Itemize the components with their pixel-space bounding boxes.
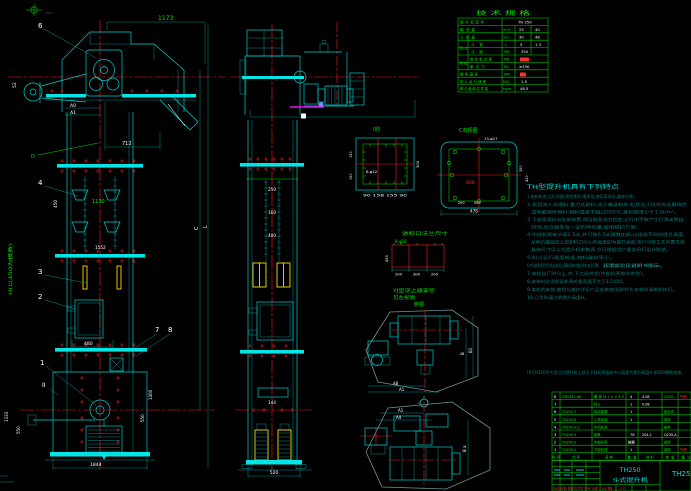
part-code: TH250.6 bbox=[561, 418, 576, 422]
view-c-350: 350 bbox=[519, 166, 523, 172]
part-name: 上部区段 bbox=[594, 417, 608, 422]
spec-group: 料斗 bbox=[460, 46, 469, 51]
note-line: 7.本机出厂时分上,中,下三段供货(中部机壳按节供货)。 bbox=[527, 270, 647, 277]
parts-header: 材 料 bbox=[646, 455, 654, 460]
parts-header: 数量 bbox=[628, 455, 638, 460]
part-material: Q235-A bbox=[664, 433, 677, 437]
balloon-2: 2 bbox=[38, 293, 42, 301]
title-drawing-no: TH250 bbox=[671, 470, 691, 478]
yj-note-1: YJ型逆止器安装 bbox=[392, 287, 436, 294]
spec-value: 40 bbox=[535, 27, 540, 32]
parts-header: 备注 bbox=[682, 455, 691, 460]
spec-value-red: ▇▇▇ bbox=[519, 57, 529, 62]
part-material: 部件 bbox=[664, 424, 671, 429]
dim-520: 520 bbox=[270, 470, 279, 476]
part-note: 外购 bbox=[680, 394, 687, 399]
dim-1173: 1173 bbox=[158, 15, 173, 22]
plan-view-bottom: A1 A4 B a bbox=[360, 396, 490, 489]
feed-h: 450 bbox=[385, 254, 389, 262]
dim-1844: 1844 bbox=[90, 462, 102, 468]
dim-52: 52 bbox=[12, 82, 18, 88]
flange-detail-i: I向 8-φ12 90 158 155 90 300 150 150 bbox=[349, 125, 420, 198]
plan1-dim-b: B bbox=[460, 352, 465, 355]
view-c-420: 420 bbox=[525, 176, 529, 182]
spec-label: 链条直径 bbox=[460, 71, 478, 76]
spec-value: 48 bbox=[535, 34, 540, 39]
spec-label: 牵引链单位质量 bbox=[460, 86, 489, 91]
balloon-3: 3 bbox=[38, 268, 42, 276]
part-no: 5 bbox=[554, 418, 556, 422]
notes-block: TH型提升机具有下列特点 1.结构先进,运行平稳,密封性好,噪声低,使用寿命长,… bbox=[526, 183, 687, 376]
note-line: 2.采用流入式喂料,重力式卸料,适于输送粉状,粒状及小块状的无磨琢性 bbox=[527, 201, 687, 208]
balloon-8: 8 bbox=[168, 326, 172, 334]
part-note: 外购 bbox=[680, 447, 687, 452]
cad-drawing-canvas[interactable]: 1173 712 A0 A1 52 1130 450 1552 H(以450为模… bbox=[0, 0, 691, 491]
part-code: GB5782-86 bbox=[562, 395, 581, 399]
spec-table-title: 技 术 规 格 bbox=[476, 9, 531, 17]
flange-i-bottom-dims: 90 158 155 90 bbox=[363, 194, 407, 198]
spec-value: 1.5 bbox=[521, 79, 528, 84]
dim-pitch-250: 250 bbox=[268, 187, 276, 192]
part-material: 部件 bbox=[664, 440, 671, 445]
spec-value: 350 bbox=[521, 49, 529, 54]
flange-i-label: I向 bbox=[373, 125, 380, 133]
dim-550-right: 550 bbox=[140, 414, 145, 422]
spec-unit: kg/m bbox=[503, 87, 511, 91]
projection-symbol bbox=[26, 4, 52, 16]
dim-a0: A0 bbox=[70, 103, 76, 109]
part-name: 中间机壳 bbox=[594, 424, 608, 429]
part-no: 3 bbox=[554, 433, 556, 437]
part-no: 7 bbox=[554, 403, 556, 407]
spec-label: 料斗运行速度 bbox=[460, 79, 487, 84]
part-qty: 1 bbox=[630, 418, 632, 422]
part-material: 部件 bbox=[664, 447, 671, 452]
title-scale: 比例 1:10 bbox=[602, 487, 626, 491]
balloon-7: 7 bbox=[155, 326, 159, 334]
spec-value: 48.5 bbox=[520, 86, 529, 91]
balloon-1: 1 bbox=[40, 359, 44, 367]
part-name: 中部机壳 bbox=[594, 440, 608, 445]
note-line: 同时,允许链条有一定的伸长量,使用维护方便。 bbox=[531, 224, 641, 231]
flange-i-left-dim2: 150 bbox=[349, 174, 353, 180]
detail-d-label: D bbox=[31, 154, 35, 160]
note-line: 6.传动装置采用YJ型逆止器,防止满载停车时链条逆转,安全可靠, bbox=[527, 262, 599, 269]
part-code: TH250.1 bbox=[561, 448, 576, 452]
feed-title: 进料口法兰尺寸 bbox=[402, 230, 449, 237]
side-elevation-view: 250 160 400 144 520 bbox=[230, 22, 420, 478]
dim-letter-l: L bbox=[203, 225, 209, 228]
plan1-dim-a8: A8 bbox=[393, 381, 399, 386]
plan2-dim-b: B a bbox=[462, 445, 467, 452]
part-code: TH250.7 bbox=[561, 410, 576, 414]
plan1-dim-a1: A1 bbox=[399, 387, 405, 392]
plan-view-label: 俯视 bbox=[414, 301, 424, 308]
note-line: 9.本机的安装,使用与维护详见产品安装使用说明书,安装时请参照执行。 bbox=[527, 286, 677, 293]
dim-h-module: H(以450为模数) bbox=[7, 243, 14, 295]
part-no: 4 bbox=[554, 425, 557, 429]
notes-title: TH型提升机具有下列特点 bbox=[526, 183, 619, 191]
spec-value-red: ▇▇ bbox=[519, 71, 526, 76]
parts-header: 代 号 bbox=[572, 455, 580, 460]
part-no: 8 bbox=[554, 395, 557, 399]
parts-table: 8 GB5782-86 螺栓M20×85 4 Q235 4.08 外购 7 料斗… bbox=[552, 392, 691, 460]
title-product: 斗式提升机 bbox=[612, 476, 649, 484]
note-line: 从地坑基础至上部卸料口中心的高度即为提升高度,用户可按工艺布置选用, bbox=[531, 239, 686, 246]
balloon-6: 6 bbox=[38, 22, 43, 30]
note-line: 1.结构先进,运行平稳,密封性好,噪声低,使用寿命长,维修方便。 bbox=[527, 193, 637, 200]
flange-i-holes: 8-φ12 bbox=[366, 169, 378, 174]
view-c-250: 250 bbox=[458, 201, 464, 205]
spec-value: 30 bbox=[519, 34, 524, 39]
yj-note-2: 见左视图 bbox=[393, 294, 416, 301]
balloon-4: 4 bbox=[38, 179, 43, 187]
plan1-dim-b1: B1 bbox=[468, 347, 473, 353]
plan2-dim-a1: A1 bbox=[398, 408, 404, 413]
feed-w3: 200 bbox=[431, 273, 439, 277]
part-name: 下部区段 bbox=[594, 447, 608, 452]
spec-label: 斗 距 bbox=[471, 49, 483, 54]
spec-unit: mm bbox=[503, 35, 509, 39]
dim-pitch-400: 400 bbox=[268, 233, 276, 238]
note-line: 具体尺寸见斗式提升机参数表,亦可根据用户要求另行设计制造。 bbox=[531, 246, 671, 253]
dim-550-left: 550 bbox=[16, 426, 21, 434]
note-line: 4.中部机壳每节高2.5米,并可按0.5米模数加高,以组成不同的提升高度, bbox=[527, 231, 685, 238]
note-line: 10.订货时请注明提升高度H。 bbox=[527, 294, 589, 301]
dim-1400: 1400 bbox=[148, 389, 153, 400]
part-material: 组合件 bbox=[664, 409, 675, 414]
dim-1333: 1333 bbox=[4, 411, 9, 422]
dim-1552: 1552 bbox=[95, 245, 106, 250]
part-weight: 4.08 bbox=[642, 395, 650, 399]
spec-unit: MM bbox=[504, 50, 510, 54]
title-model: TH250 bbox=[618, 466, 640, 474]
plan-view-top: 俯视 A8 A1 B B1 bbox=[365, 301, 478, 392]
flange-detail-c: C向视图 13-φ17 600 250 500 478 350 420 bbox=[437, 127, 529, 216]
spec-label: 牵引力 bbox=[470, 64, 485, 69]
plan2-dim-a4: A4 bbox=[396, 415, 402, 420]
part-no: 2 bbox=[554, 441, 556, 445]
spec-unit: MM bbox=[504, 72, 510, 76]
view-c-500: 500 bbox=[474, 201, 480, 205]
spec-unit: m³/h bbox=[503, 28, 511, 32]
spec-label: 电动机功率 bbox=[470, 57, 493, 62]
spec-unit: KN bbox=[504, 65, 509, 69]
feed-w1: 200 bbox=[395, 273, 403, 277]
part-weight: 204.2 bbox=[642, 433, 652, 437]
part-material: 部件 bbox=[664, 417, 671, 422]
spec-label: 提升机型号 bbox=[460, 20, 484, 25]
view-c-holes: 13-φ17 bbox=[484, 136, 498, 141]
part-qty: 1 bbox=[630, 448, 632, 452]
part-name: 传动装置 bbox=[594, 409, 608, 414]
note-line: 5.料斗运行速度较低,物料破碎率小。 bbox=[527, 254, 615, 261]
dim-450: 450 bbox=[53, 200, 58, 208]
part-material: Q235 bbox=[664, 395, 673, 399]
spec-table: 技 术 规 格 提升机型号 TH 250 输送量 m³/h 25 40 斗提量 … bbox=[458, 9, 548, 92]
dim-480: 480 bbox=[84, 341, 93, 347]
part-qty: 1 bbox=[630, 410, 632, 414]
spec-group: 电机 bbox=[460, 61, 469, 66]
parts-header: 单重 bbox=[666, 455, 676, 460]
note-line: 8.安装时必须保证机壳的垂直度不大于1/1000。 bbox=[527, 278, 627, 285]
part-qty: 1 bbox=[630, 403, 632, 407]
feed-w2: 300 bbox=[413, 273, 421, 277]
title-block: 标记 处数 更改文件号 签字 日期 TH250 斗式提升机 比例 1:10 TH… bbox=[552, 460, 691, 491]
spec-value: ≥330 bbox=[519, 64, 530, 69]
part-qty: 4 bbox=[630, 395, 633, 399]
flange-i-right-dim: 300 bbox=[415, 160, 420, 168]
spec-value: 25 bbox=[519, 27, 524, 32]
revision-row: 标记 处数 更改文件号 签字 日期 bbox=[553, 487, 598, 491]
spec-label: 斗提量 bbox=[460, 34, 475, 39]
spec-label: 斗 宽 bbox=[471, 42, 483, 47]
note-footer: (9)TH250中大型斗式提升机上部与下部机壳链轮中心距即为提升高度H,按450… bbox=[527, 369, 685, 376]
spec-label: 输送量 bbox=[460, 27, 475, 32]
spec-unit: M/S bbox=[503, 80, 509, 84]
dim-712: 712 bbox=[122, 141, 132, 147]
feed-inlet-detail: 进料口法兰尺寸 8-φ18 200 300 200 450 YJ型逆止器安装 见… bbox=[385, 230, 449, 301]
spec-value: 1.3 bbox=[535, 42, 542, 47]
flange-i-left-dim1: 150 bbox=[349, 152, 353, 158]
note-line: 3.下部采用自动张紧装置,保证链条张力恒定,运行中不致产生打滑或脱链, bbox=[527, 216, 685, 223]
parts-header: 名 称 bbox=[605, 455, 613, 460]
spec-value: TH 250 bbox=[517, 20, 532, 25]
part-name: 链条 bbox=[594, 432, 601, 437]
part-qty: 按需 bbox=[628, 440, 635, 445]
part-no: 1 bbox=[554, 448, 556, 452]
section-mark: II bbox=[42, 382, 46, 389]
part-no: 6 bbox=[554, 410, 557, 414]
view-c-label: C向视图 bbox=[459, 127, 478, 134]
spec-value: 5 bbox=[520, 42, 523, 47]
dim-1130: 1130 bbox=[92, 199, 105, 205]
note-line: 或半磨琢性物料,物料温度不超过250℃,堆积密度小于1.5t/m³。 bbox=[531, 209, 679, 216]
spec-unit: L bbox=[505, 43, 507, 47]
view-c-600: 600 bbox=[466, 180, 475, 186]
part-code: TH250.2 bbox=[561, 441, 576, 445]
view-c-478: 478 bbox=[470, 209, 478, 214]
front-elevation-view: 1173 712 A0 A1 52 1130 450 1552 H(以450为模… bbox=[0, 15, 225, 482]
note-highlight: 润滑部位见说明书图示。 bbox=[603, 262, 665, 269]
dim-pitch-160: 160 bbox=[268, 210, 276, 215]
part-name: 螺栓M20×85 bbox=[594, 394, 624, 399]
part-code: TH250.3 bbox=[561, 433, 576, 437]
spec-unit: KW bbox=[504, 58, 510, 62]
part-code: TH250.4.5 bbox=[561, 425, 580, 429]
part-qty: 78 bbox=[630, 433, 635, 437]
part-name: 料斗 bbox=[594, 402, 601, 407]
dim-letter-c: C bbox=[194, 226, 200, 230]
dim-144: 144 bbox=[268, 400, 276, 405]
part-weight: 0.08 bbox=[642, 403, 650, 407]
parts-header: 件号 bbox=[552, 455, 561, 460]
